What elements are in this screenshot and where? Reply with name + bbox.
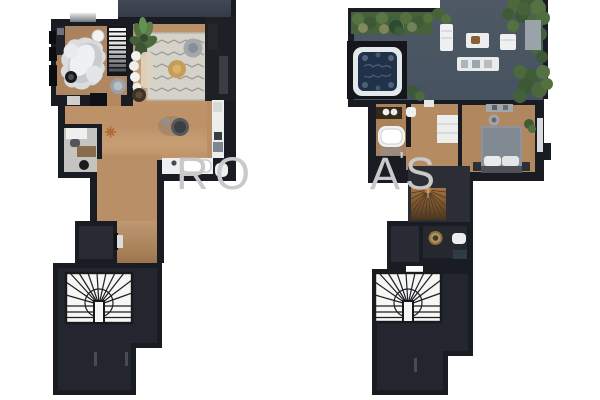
svg-text:A: A [370, 148, 400, 199]
svg-text:R: R [176, 148, 209, 199]
svg-text:O: O [215, 148, 250, 199]
svg-text:': ' [399, 146, 404, 177]
svg-text:S: S [405, 148, 435, 199]
